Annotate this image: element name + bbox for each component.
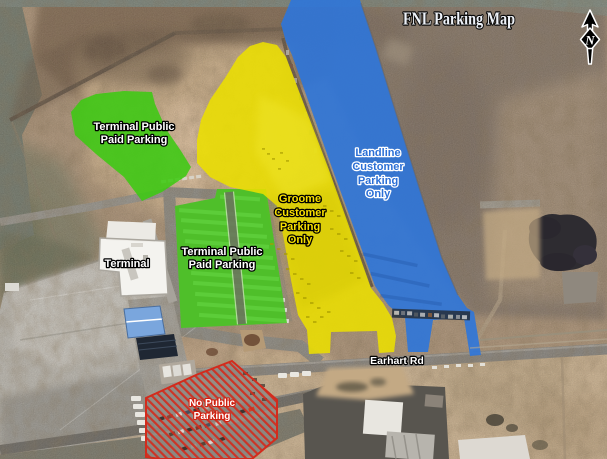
svg-text:Parking: Parking <box>280 221 320 233</box>
svg-text:Paid Parking: Paid Parking <box>101 134 168 146</box>
svg-text:Terminal Public: Terminal Public <box>93 121 174 133</box>
svg-text:Landline: Landline <box>355 147 400 159</box>
svg-text:Parking: Parking <box>358 175 398 187</box>
svg-text:Customer: Customer <box>274 207 326 219</box>
svg-text:FNL Parking Map: FNL Parking Map <box>403 9 515 29</box>
svg-text:Terminal: Terminal <box>104 258 149 270</box>
svg-text:Terminal Public: Terminal Public <box>181 246 262 258</box>
svg-text:Earhart Rd: Earhart Rd <box>370 355 424 367</box>
svg-text:N: N <box>584 33 595 48</box>
svg-text:No Public: No Public <box>189 398 236 409</box>
svg-text:Groome: Groome <box>279 193 321 205</box>
svg-text:Customer: Customer <box>352 161 404 173</box>
svg-text:Parking: Parking <box>194 411 231 422</box>
svg-text:Only: Only <box>288 234 313 246</box>
svg-text:Paid Parking: Paid Parking <box>189 259 256 271</box>
svg-text:Only: Only <box>366 188 391 200</box>
